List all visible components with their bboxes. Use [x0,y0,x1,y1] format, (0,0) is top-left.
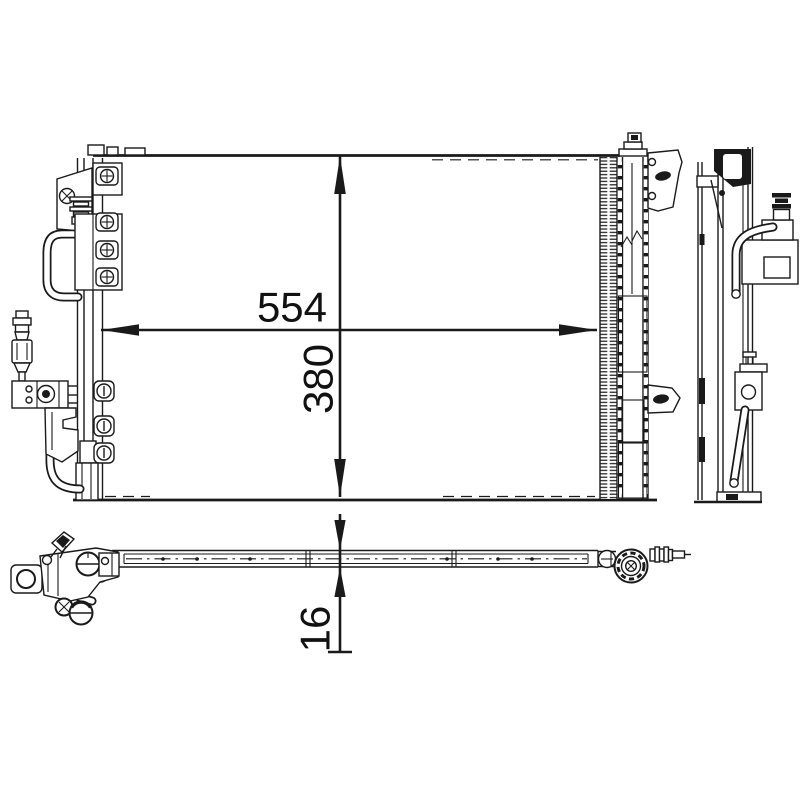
bottom-view [11,532,691,625]
pressure-switch-assembly [12,311,78,462]
height-dimension-label: 380 [295,344,342,414]
mounting-studs-left [94,167,118,463]
condenser-technical-drawing-page: 554 380 16 [0,0,800,800]
side-view [694,147,798,502]
mounting-bracket-top-right [648,150,682,211]
condenser-technical-drawing: 554 380 16 [0,0,800,800]
thickness-dimension-label: 16 [292,606,339,653]
arrowhead-down-icon [334,520,345,550]
arrowhead-left-icon [101,324,139,335]
bottom-strip [112,551,616,568]
arrowhead-down-icon [334,459,346,497]
arrowhead-up-icon [334,156,346,194]
arrowhead-up-icon [334,568,345,598]
width-dimension-label: 554 [257,284,327,331]
dimension-width: 554 [101,284,597,336]
right-header-tank [618,133,648,499]
u-pipe-upper [47,234,78,297]
ribbed-fitting-side [772,193,791,220]
side-connector-block [732,193,798,298]
ribbed-stub-bottom-right [650,547,691,562]
dimension-thickness: 16 [292,514,353,652]
bottom-left-fitting [11,532,119,625]
mounting-bracket-mid-right [648,385,680,413]
side-fin-edge [698,162,705,500]
fin-pack-band [600,157,617,499]
arrowhead-right-icon [559,324,597,335]
tank-top-cap [619,133,647,156]
front-view [12,133,682,500]
bottom-right-service-flange [599,547,692,583]
